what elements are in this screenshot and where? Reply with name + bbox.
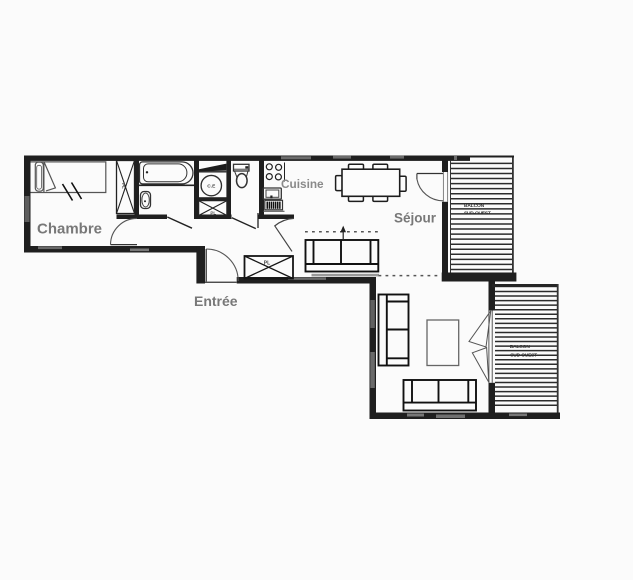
svg-text:BALCON: BALCON [464, 203, 485, 209]
svg-text:Chambre: Chambre [37, 221, 102, 238]
svg-text:PL: PL [210, 211, 216, 216]
svg-text:SUD-OUEST: SUD-OUEST [464, 210, 491, 216]
svg-text:Entrée: Entrée [194, 293, 238, 309]
svg-text:C.E: C.E [207, 183, 216, 189]
svg-text:Cuisine: Cuisine [281, 177, 324, 191]
svg-text:PL: PL [121, 183, 126, 189]
svg-text:BALCON: BALCON [510, 344, 531, 350]
svg-text:SUD-OUEST: SUD-OUEST [510, 353, 537, 359]
svg-text:Séjour: Séjour [394, 211, 437, 226]
svg-text:PL: PL [264, 260, 270, 266]
